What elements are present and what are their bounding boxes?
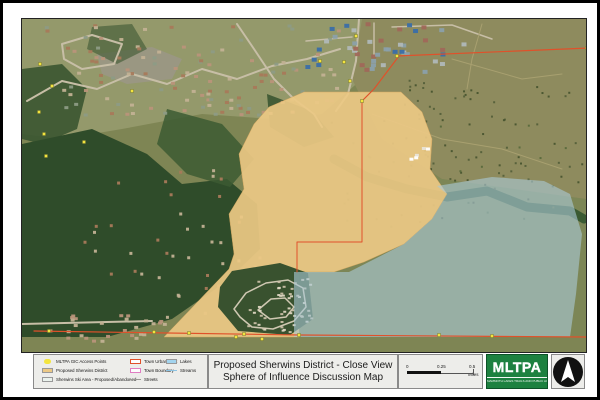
legend-label: Proposed Sherwins District (56, 368, 107, 373)
legend-swatch-access-points (44, 359, 51, 364)
map-title-line2: Sphere of Influence Discussion Map (209, 372, 397, 383)
legend-label: Streets (144, 377, 158, 382)
legend-swatch-lakes (166, 359, 177, 364)
legend-label: Streams (180, 368, 196, 373)
mltpa-logo-subtext: MAMMOTH LAKES TRAILS AND PUBLIC ACCESS (487, 377, 547, 383)
legend-swatch-urban-limit (130, 359, 141, 364)
scale-bar-segment (407, 371, 441, 374)
scale-bar: 0 0.25 0.5 Miles (398, 354, 483, 389)
legend: MLTPA GIC Access Points Proposed Sherwin… (33, 354, 208, 389)
map-document-page: MLTPA GIC Access Points Proposed Sherwin… (0, 0, 600, 400)
legend-label: Lakes (180, 359, 192, 364)
scale-bar-end-tick (473, 369, 474, 375)
legend-swatch-ski-area (42, 377, 53, 382)
scale-bar-line (441, 373, 473, 374)
legend-swatch-town-boundary (130, 368, 141, 373)
north-arrow-box (551, 354, 585, 389)
legend-swatch-streets (130, 379, 141, 380)
scale-label-0: 0 (406, 364, 409, 369)
map-svg (22, 19, 586, 352)
scale-label-quarter: 0.25 (437, 364, 446, 369)
legend-label: Sherwins Ski Area - Proposed/Abandoned (56, 377, 136, 382)
map-title-line1: Proposed Sherwins District - Close View (209, 360, 397, 371)
mltpa-logo: MLTPA MAMMOTH LAKES TRAILS AND PUBLIC AC… (486, 354, 548, 389)
legend-label: MLTPA GIC Access Points (56, 359, 106, 364)
legend-swatch-streams (166, 370, 177, 371)
legend-swatch-district (42, 368, 53, 373)
map-area (21, 18, 587, 353)
mltpa-logo-text: MLTPA (487, 359, 547, 375)
north-arrow-icon (552, 356, 584, 388)
map-title-block: Proposed Sherwins District - Close View … (208, 354, 398, 389)
